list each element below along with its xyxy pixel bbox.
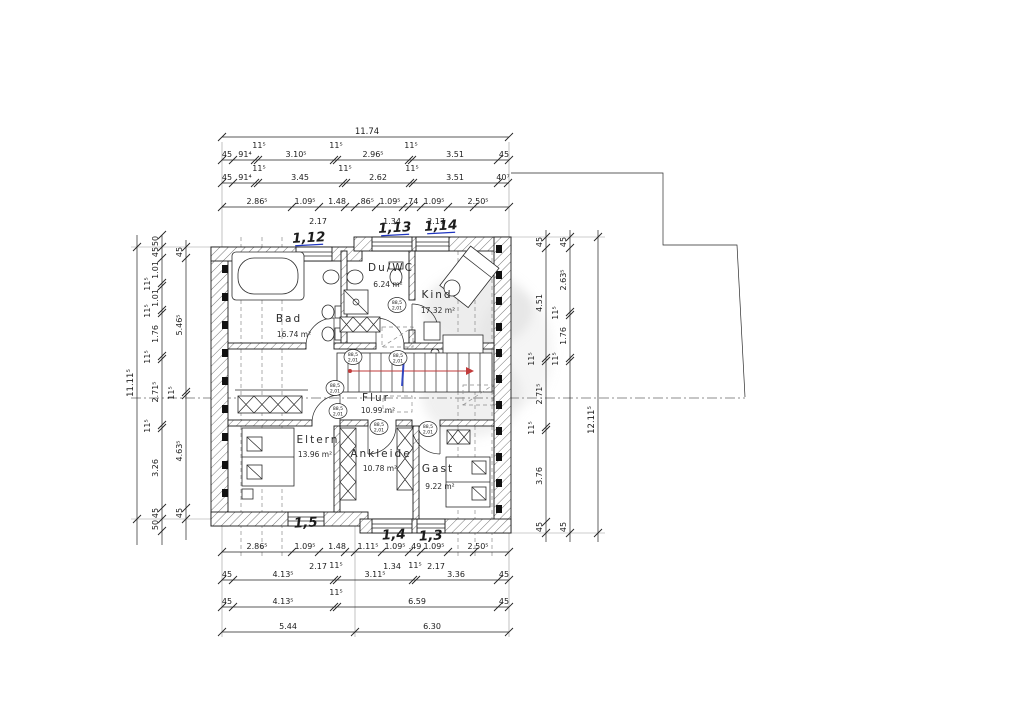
dim-label: 1.09⁵: [384, 542, 405, 551]
dim-label: 3.45: [291, 173, 309, 182]
shower: [344, 290, 368, 314]
dim-label: 45: [222, 597, 232, 606]
dim-label: 45: [559, 237, 568, 247]
dim-label: 2.17: [309, 217, 327, 226]
dim-chain-left-chain-2: 50451.0111⁵1.0111⁵1.7611⁵2.71⁵11⁵3.26455…: [143, 231, 166, 545]
dim-label: 3.11⁵: [364, 570, 385, 579]
dim-label: 1.09⁵: [294, 197, 315, 206]
room-area: 13.96 m²: [298, 450, 332, 459]
dim-label: 45: [175, 508, 184, 518]
dim-label: 3.76: [535, 467, 544, 485]
dim-label: 1.11⁵: [357, 542, 378, 551]
dim-label: 1.09⁵: [423, 197, 444, 206]
room-name: Ankleide: [350, 448, 411, 460]
floorplan-page: 11.744591⁴11⁵3.10⁵11⁵2.96⁵11⁵3.51454591⁴…: [0, 0, 1024, 724]
cabinet-bad: [235, 390, 308, 413]
dim-label: 45: [559, 522, 568, 532]
dim-label: 1.01: [151, 261, 160, 279]
dim-label: 12.11⁵: [587, 406, 597, 434]
door-tag-height: 2,01: [333, 412, 343, 418]
door-tag: 88,52,01: [370, 420, 388, 435]
dim-label: 11⁵: [329, 141, 342, 150]
dim-label: 45: [222, 173, 232, 182]
bathtub: [232, 252, 304, 300]
dim-chain-bottom-chain-3: 454.13⁵11⁵6.5945: [218, 588, 513, 611]
door-tag-width: 88,5: [330, 383, 340, 389]
dim-label: 6.30: [423, 622, 441, 631]
door-tag-width: 88,5: [348, 352, 358, 358]
dim-label: 45: [499, 150, 509, 159]
eltern-bed: [242, 428, 294, 499]
dim-label: 6.59: [408, 597, 426, 606]
dim-label: 2.63⁵: [559, 269, 568, 290]
dim-label: 11⁵: [252, 164, 265, 173]
floorplan-drawing: 11.744591⁴11⁵3.10⁵11⁵2.96⁵11⁵3.51454591⁴…: [0, 0, 1024, 724]
dim-label: 40⁷: [496, 173, 509, 182]
dim-label: 91⁴: [238, 173, 251, 182]
dim-label: 11⁵: [405, 164, 418, 173]
dim-label: 1.48: [328, 197, 346, 206]
dim-label: 3.51: [446, 173, 464, 182]
blue-annotation: 1,13: [378, 219, 412, 237]
room-area: 9.22 m²: [425, 482, 454, 491]
dim-label: 11⁵: [143, 277, 152, 290]
dim-label: 2.50⁵: [467, 542, 488, 551]
blue-annotation-text: 1,3: [418, 527, 443, 544]
room-name: Gast: [422, 463, 454, 475]
room-area: 16.74 m²: [277, 330, 311, 339]
door-tag-width: 88,5: [393, 353, 403, 359]
dim-label: 2.50⁵: [467, 197, 488, 206]
dim-label: 4.13⁵: [272, 570, 293, 579]
window-1-13: [372, 237, 412, 251]
room-area: 10.78 m²: [363, 464, 397, 473]
dim-label: 1.09⁵: [294, 542, 315, 551]
dim-label: 11⁵: [252, 141, 265, 150]
door-tag: 88,52,01: [344, 350, 362, 365]
dim-label: 3.26: [151, 459, 160, 477]
dim-label: 11⁵: [404, 141, 417, 150]
dim-label: 11⁵: [143, 304, 152, 317]
dim-chain-bottom-chain-2: 454.13⁵11⁵3.11⁵11⁵3.3645: [218, 561, 513, 584]
room-name: Bad: [276, 313, 302, 325]
room-area: 10.99 m²: [361, 406, 395, 415]
room-area: 17.32 m²: [421, 306, 455, 315]
room-name: Kind: [421, 289, 452, 301]
dim-chain-top-chain-2: 4591⁴11⁵3.10⁵11⁵2.96⁵11⁵3.5145: [218, 141, 513, 164]
door-tag-width: 88,5: [374, 422, 384, 428]
dim-label: 2.17: [309, 562, 327, 571]
dim-label: 2.96⁵: [362, 150, 383, 159]
dim-chain-left-overall: 11.11⁵: [126, 235, 141, 545]
door-tag: 88,52,01: [329, 404, 347, 419]
dim-label: 1.76: [559, 327, 568, 345]
blue-annotation-text: 1,4: [381, 526, 406, 543]
dim-label: 2.62: [369, 173, 387, 182]
dim-label: 2.86⁵: [246, 542, 267, 551]
dim-label: 2.86⁵: [246, 197, 267, 206]
dim-label: 5.46⁵: [175, 314, 184, 335]
dim-label: 91⁴: [238, 150, 251, 159]
door-tag-width: 88,5: [423, 424, 433, 430]
window-1-14: [416, 237, 449, 251]
dim-label: 45: [151, 508, 160, 518]
dim-label: 11⁵: [551, 306, 560, 319]
room-name: Flur: [362, 392, 390, 404]
dim-label: 2.71⁵: [535, 383, 544, 404]
wardrobe-gast: [447, 430, 470, 444]
dim-label: 11⁵: [338, 164, 351, 173]
dim-label: 11⁵: [329, 561, 342, 570]
dim-label: 11⁵: [167, 386, 176, 399]
blue-annotation-text: 1,5: [293, 514, 318, 531]
blue-annotation: 1,5: [293, 514, 318, 531]
dim-label: 1.09⁵: [379, 197, 400, 206]
dim-label: 45: [499, 570, 509, 579]
dim-label: 11⁵: [408, 561, 421, 570]
blue-annotation: 1,12: [292, 229, 326, 247]
door-tag-width: 88,5: [333, 406, 343, 412]
dim-label: 11.11⁵: [126, 369, 136, 397]
room-label-eltern: Eltern13.96 m²: [297, 434, 340, 459]
dim-label: 45: [535, 522, 544, 532]
dim-chain-bottom-chain-4: 5.446.30: [218, 622, 513, 636]
dim-label: 4.63⁵: [175, 440, 184, 461]
door-tag-height: 2,01: [330, 389, 340, 395]
door-tag-height: 2,01: [348, 358, 358, 364]
dim-label: 11⁵: [143, 419, 152, 432]
door-tag-height: 2,01: [374, 428, 384, 434]
dim-label: 1.34: [383, 562, 401, 571]
dim-chain-bottom-chain-1: 2.86⁵1.09⁵1.481.11⁵1.09⁵.491.09⁵2.50⁵2.1…: [218, 542, 513, 571]
room-area: 6.24 m²: [373, 280, 402, 289]
dim-label: 45: [222, 570, 232, 579]
dim-label: 45: [175, 247, 184, 257]
dim-label: 11⁵: [143, 350, 152, 363]
dim-chain-top-chain-3: 4591⁴11⁵3.4511⁵2.6211⁵3.5140⁷: [218, 164, 512, 187]
dim-label: 45: [222, 150, 232, 159]
door-tag-height: 2,01: [393, 359, 403, 365]
door-tag: 88,52,01: [419, 422, 437, 437]
cabinet-flur: [340, 317, 380, 332]
dim-label: 11⁵: [329, 588, 342, 597]
dim-label: 50: [151, 520, 160, 530]
dim-label: 2.71⁵: [151, 381, 160, 402]
door-tag: 88,52,01: [388, 298, 406, 313]
dim-label: 4.13⁵: [272, 597, 293, 606]
door-tag-height: 2,01: [392, 306, 402, 312]
dim-label: 5.44: [279, 622, 297, 631]
dim-label: .86⁵: [358, 197, 374, 206]
dim-chain-top-chain-4: 2.86⁵1.09⁵1.48.86⁵1.09⁵.741.09⁵2.50⁵2.17…: [218, 197, 513, 226]
room-name: Du/WC: [368, 262, 414, 274]
door-tag-width: 88,5: [392, 300, 402, 306]
door-tag: 88,52,01: [389, 351, 407, 366]
dim-label: 1.76: [151, 325, 160, 343]
blue-annotation: 1,4: [381, 526, 406, 543]
dim-label: 45: [535, 237, 544, 247]
dim-chain-right-chain-2: 452.63⁵11⁵1.7611⁵45: [551, 230, 574, 542]
room-name: Eltern: [297, 434, 340, 446]
door-tag: 88,52,01: [326, 381, 344, 396]
dim-label: 3.10⁵: [285, 150, 306, 159]
dim-chain-left-chain-3: 455.46⁵11⁵4.63⁵45: [167, 240, 190, 540]
dim-chain-right-overall: 12.11⁵: [587, 230, 602, 542]
wc-bad: [322, 305, 341, 341]
wardrobe-eltern-ankleide: [340, 428, 356, 500]
dim-label: 1.48: [328, 542, 346, 551]
dim-label: .74: [406, 197, 419, 206]
dim-label: 11⁵: [551, 352, 560, 365]
door-tag-height: 2,01: [423, 430, 433, 436]
dim-label: 11⁵: [527, 352, 536, 365]
dim-label: 50: [151, 236, 160, 246]
dim-label: 11⁵: [527, 421, 536, 434]
room-label-bad: Bad16.74 m²: [276, 313, 311, 339]
dim-label: 11.74: [355, 127, 379, 137]
dim-label: 1.01: [151, 289, 160, 307]
dim-label: 3.36: [447, 570, 465, 579]
dim-label: 45: [499, 597, 509, 606]
dim-label: 45: [151, 247, 160, 257]
blue-annotation: 1,14: [424, 217, 458, 235]
blue-annotation: 1,3: [418, 527, 443, 544]
dim-label: 2.17: [427, 562, 445, 571]
dim-label: 4.51: [535, 294, 544, 312]
dim-chain-top-overall: 11.74: [218, 127, 513, 141]
room-label-flur: Flur10.99 m²: [361, 392, 395, 415]
dim-label: 3.51: [446, 150, 464, 159]
